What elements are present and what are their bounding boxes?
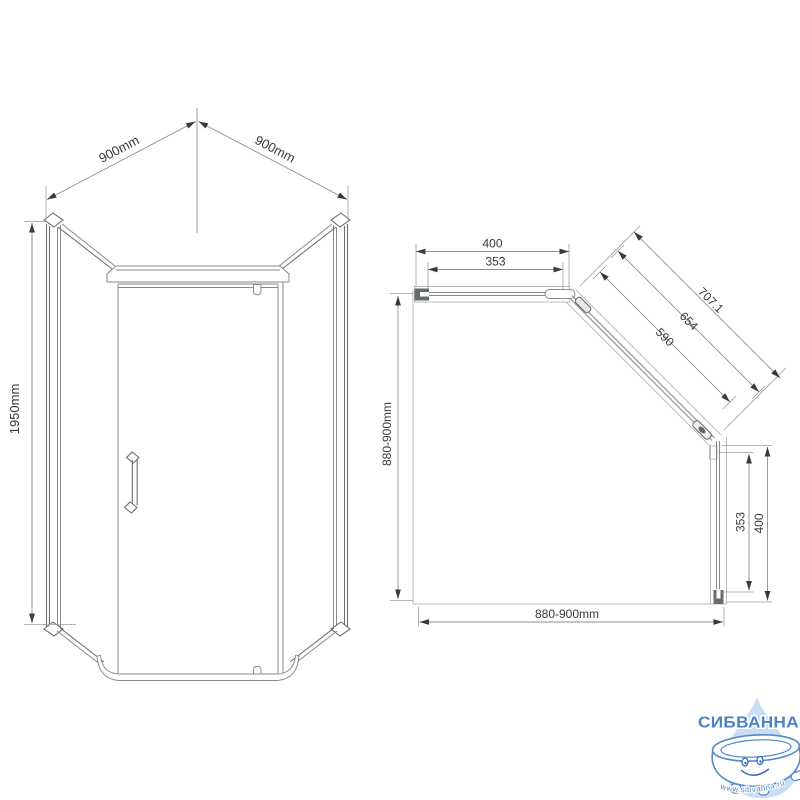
dim-label-880-left: 880-900mm [380, 402, 394, 466]
dim-label-654: 654 [677, 309, 701, 333]
dim-label-900-left: 900mm [96, 132, 141, 165]
right-wall-profile [331, 213, 350, 636]
bottom-sill [97, 656, 299, 681]
dim-label-400-right: 400 [752, 513, 766, 533]
front-elevation-view: 900mm 900mm 1950mm [7, 108, 350, 681]
plan-top-dimensions: 400 353 [416, 237, 569, 290]
technical-drawing: 900mm 900mm 1950mm [0, 0, 800, 800]
plan-diagonal-dimensions: 707.1 654 590 [580, 226, 786, 430]
top-frame-rail [107, 266, 289, 288]
plan-right-glass-panel [711, 437, 727, 604]
logo-brand-text: СИБВАННА [698, 715, 799, 732]
dim-label-353-right: 353 [734, 512, 748, 532]
plan-left-dimension: 880-900mm [380, 294, 413, 601]
top-roller-knob [254, 285, 262, 295]
plan-view: 400 353 707.1 654 590 880-900mm [380, 226, 786, 627]
dim-label-1950: 1950mm [7, 384, 22, 435]
drawing-canvas: 900mm 900mm 1950mm [0, 0, 800, 800]
plan-top-glass-panel [415, 287, 576, 303]
front-height-dimension: 1950mm [7, 222, 76, 625]
top-hinge-clamp [545, 290, 575, 299]
dim-label-400-top: 400 [482, 237, 502, 251]
dim-label-707: 707.1 [695, 285, 726, 316]
front-width-dimensions: 900mm 900mm [46, 108, 348, 233]
plan-outline [413, 290, 727, 604]
door-panel [118, 282, 283, 676]
left-wall-profile [44, 213, 63, 636]
dim-label-900-right: 900mm [252, 132, 297, 165]
sibvanna-logo: СИБВАННА www.sibvanna.ru [698, 697, 800, 798]
door-handle [125, 452, 140, 513]
plan-bottom-dimension: 880-900mm [419, 607, 725, 627]
dim-label-353-top: 353 [485, 255, 505, 269]
dim-label-880-bottom: 880-900mm [535, 607, 599, 621]
